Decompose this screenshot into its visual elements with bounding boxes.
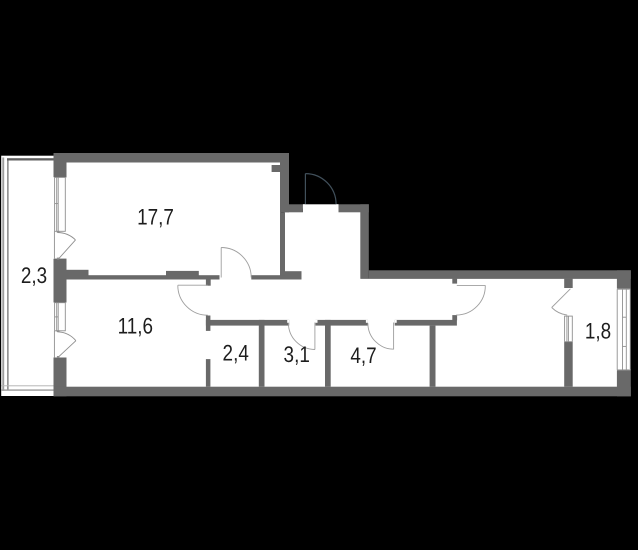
svg-text:3,1: 3,1 — [284, 342, 310, 367]
svg-text:2,3: 2,3 — [21, 263, 47, 288]
svg-text:4,7: 4,7 — [350, 343, 376, 368]
svg-text:17,7: 17,7 — [137, 204, 174, 229]
svg-text:2,4: 2,4 — [223, 341, 249, 366]
svg-text:11,6: 11,6 — [118, 313, 153, 338]
svg-text:1,8: 1,8 — [585, 318, 611, 343]
